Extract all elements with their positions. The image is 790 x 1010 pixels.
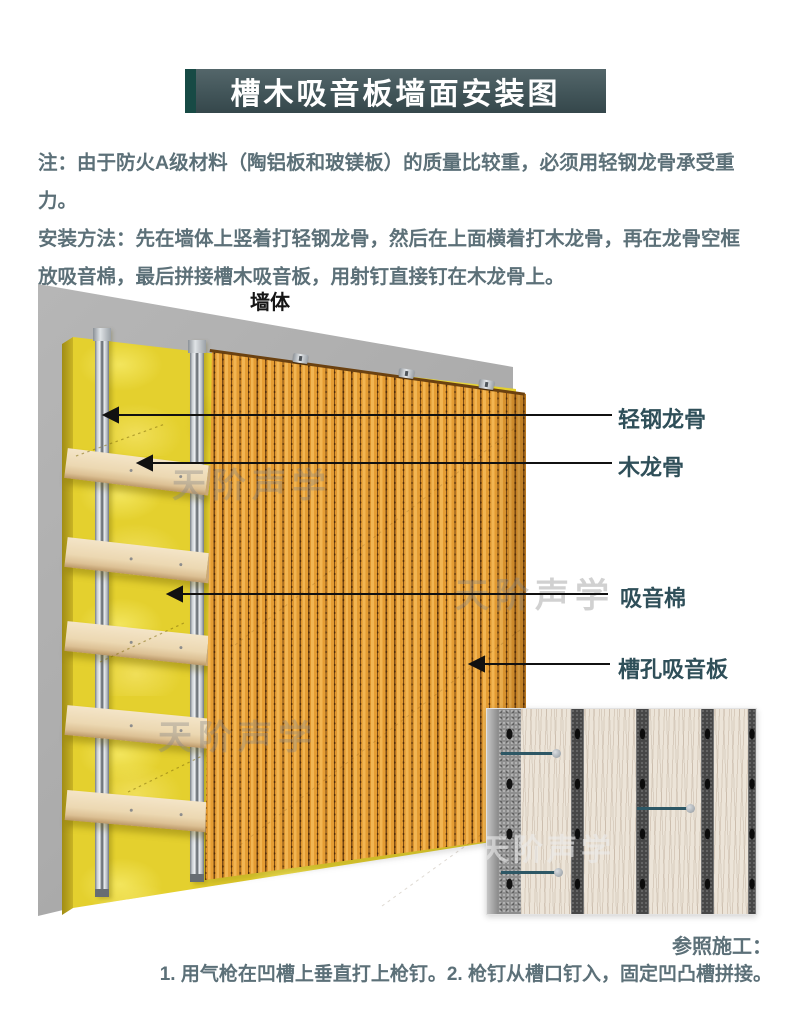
construction-reference-heading: 参照施工： <box>100 934 772 960</box>
construction-reference: 参照施工： 1. 用气枪在凹槽上垂直打上枪钉。2. 枪钉从槽口钉入，固定凹凸槽拼… <box>100 934 772 988</box>
callout-arrow <box>104 408 612 671</box>
construction-reference-steps: 1. 用气枪在凹槽上垂直打上枪钉。2. 枪钉从槽口钉入，固定凹凸槽拼接。 <box>100 962 772 988</box>
annotation-overlay <box>0 0 790 1010</box>
callout-slotted-panel: 槽孔吸音板 <box>618 652 728 684</box>
callout-wood-batten: 木龙骨 <box>618 450 684 482</box>
wall-label: 墙体 <box>250 286 290 315</box>
callout-insulation: 吸音棉 <box>620 581 686 613</box>
page: 槽木吸音板墙面安装图 注：由于防火A级材料（陶铝板和玻镁板）的质量比较重，必须用… <box>0 0 790 1010</box>
callout-steel-stud: 轻钢龙骨 <box>618 402 706 434</box>
insulation-stitch-lines <box>76 424 202 792</box>
